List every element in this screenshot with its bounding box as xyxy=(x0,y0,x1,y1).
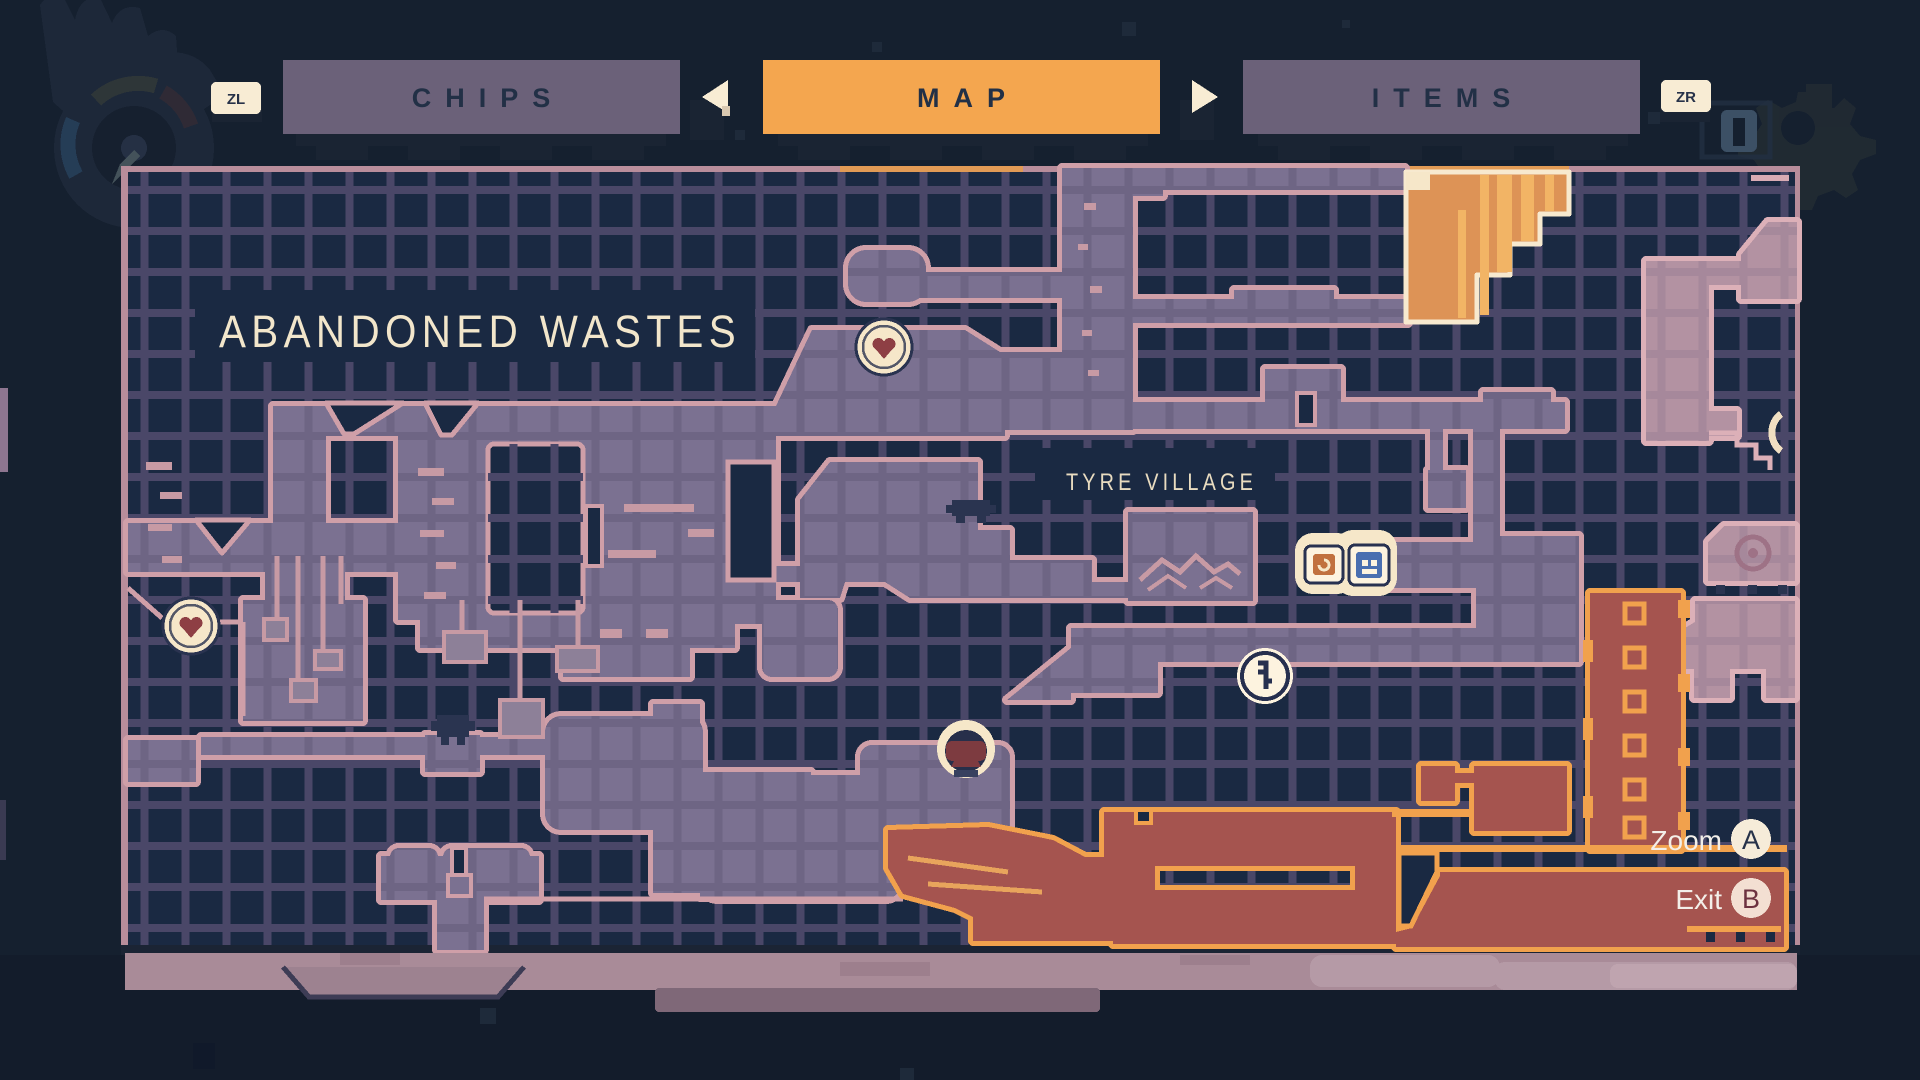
svg-text:Exit: Exit xyxy=(1675,884,1722,915)
svg-text:B: B xyxy=(1742,884,1760,914)
svg-text:A: A xyxy=(1742,825,1760,855)
svg-text:ZR: ZR xyxy=(1676,89,1696,106)
svg-text:MAP: MAP xyxy=(917,83,1019,113)
svg-text:Zoom: Zoom xyxy=(1650,825,1722,856)
svg-text:CHIPS: CHIPS xyxy=(412,83,565,113)
svg-text:ABANDONED WASTES: ABANDONED WASTES xyxy=(219,306,741,357)
svg-text:TYRE VILLAGE: TYRE VILLAGE xyxy=(1066,469,1257,496)
svg-text:ITEMS: ITEMS xyxy=(1372,83,1525,113)
svg-text:ZL: ZL xyxy=(227,91,245,108)
